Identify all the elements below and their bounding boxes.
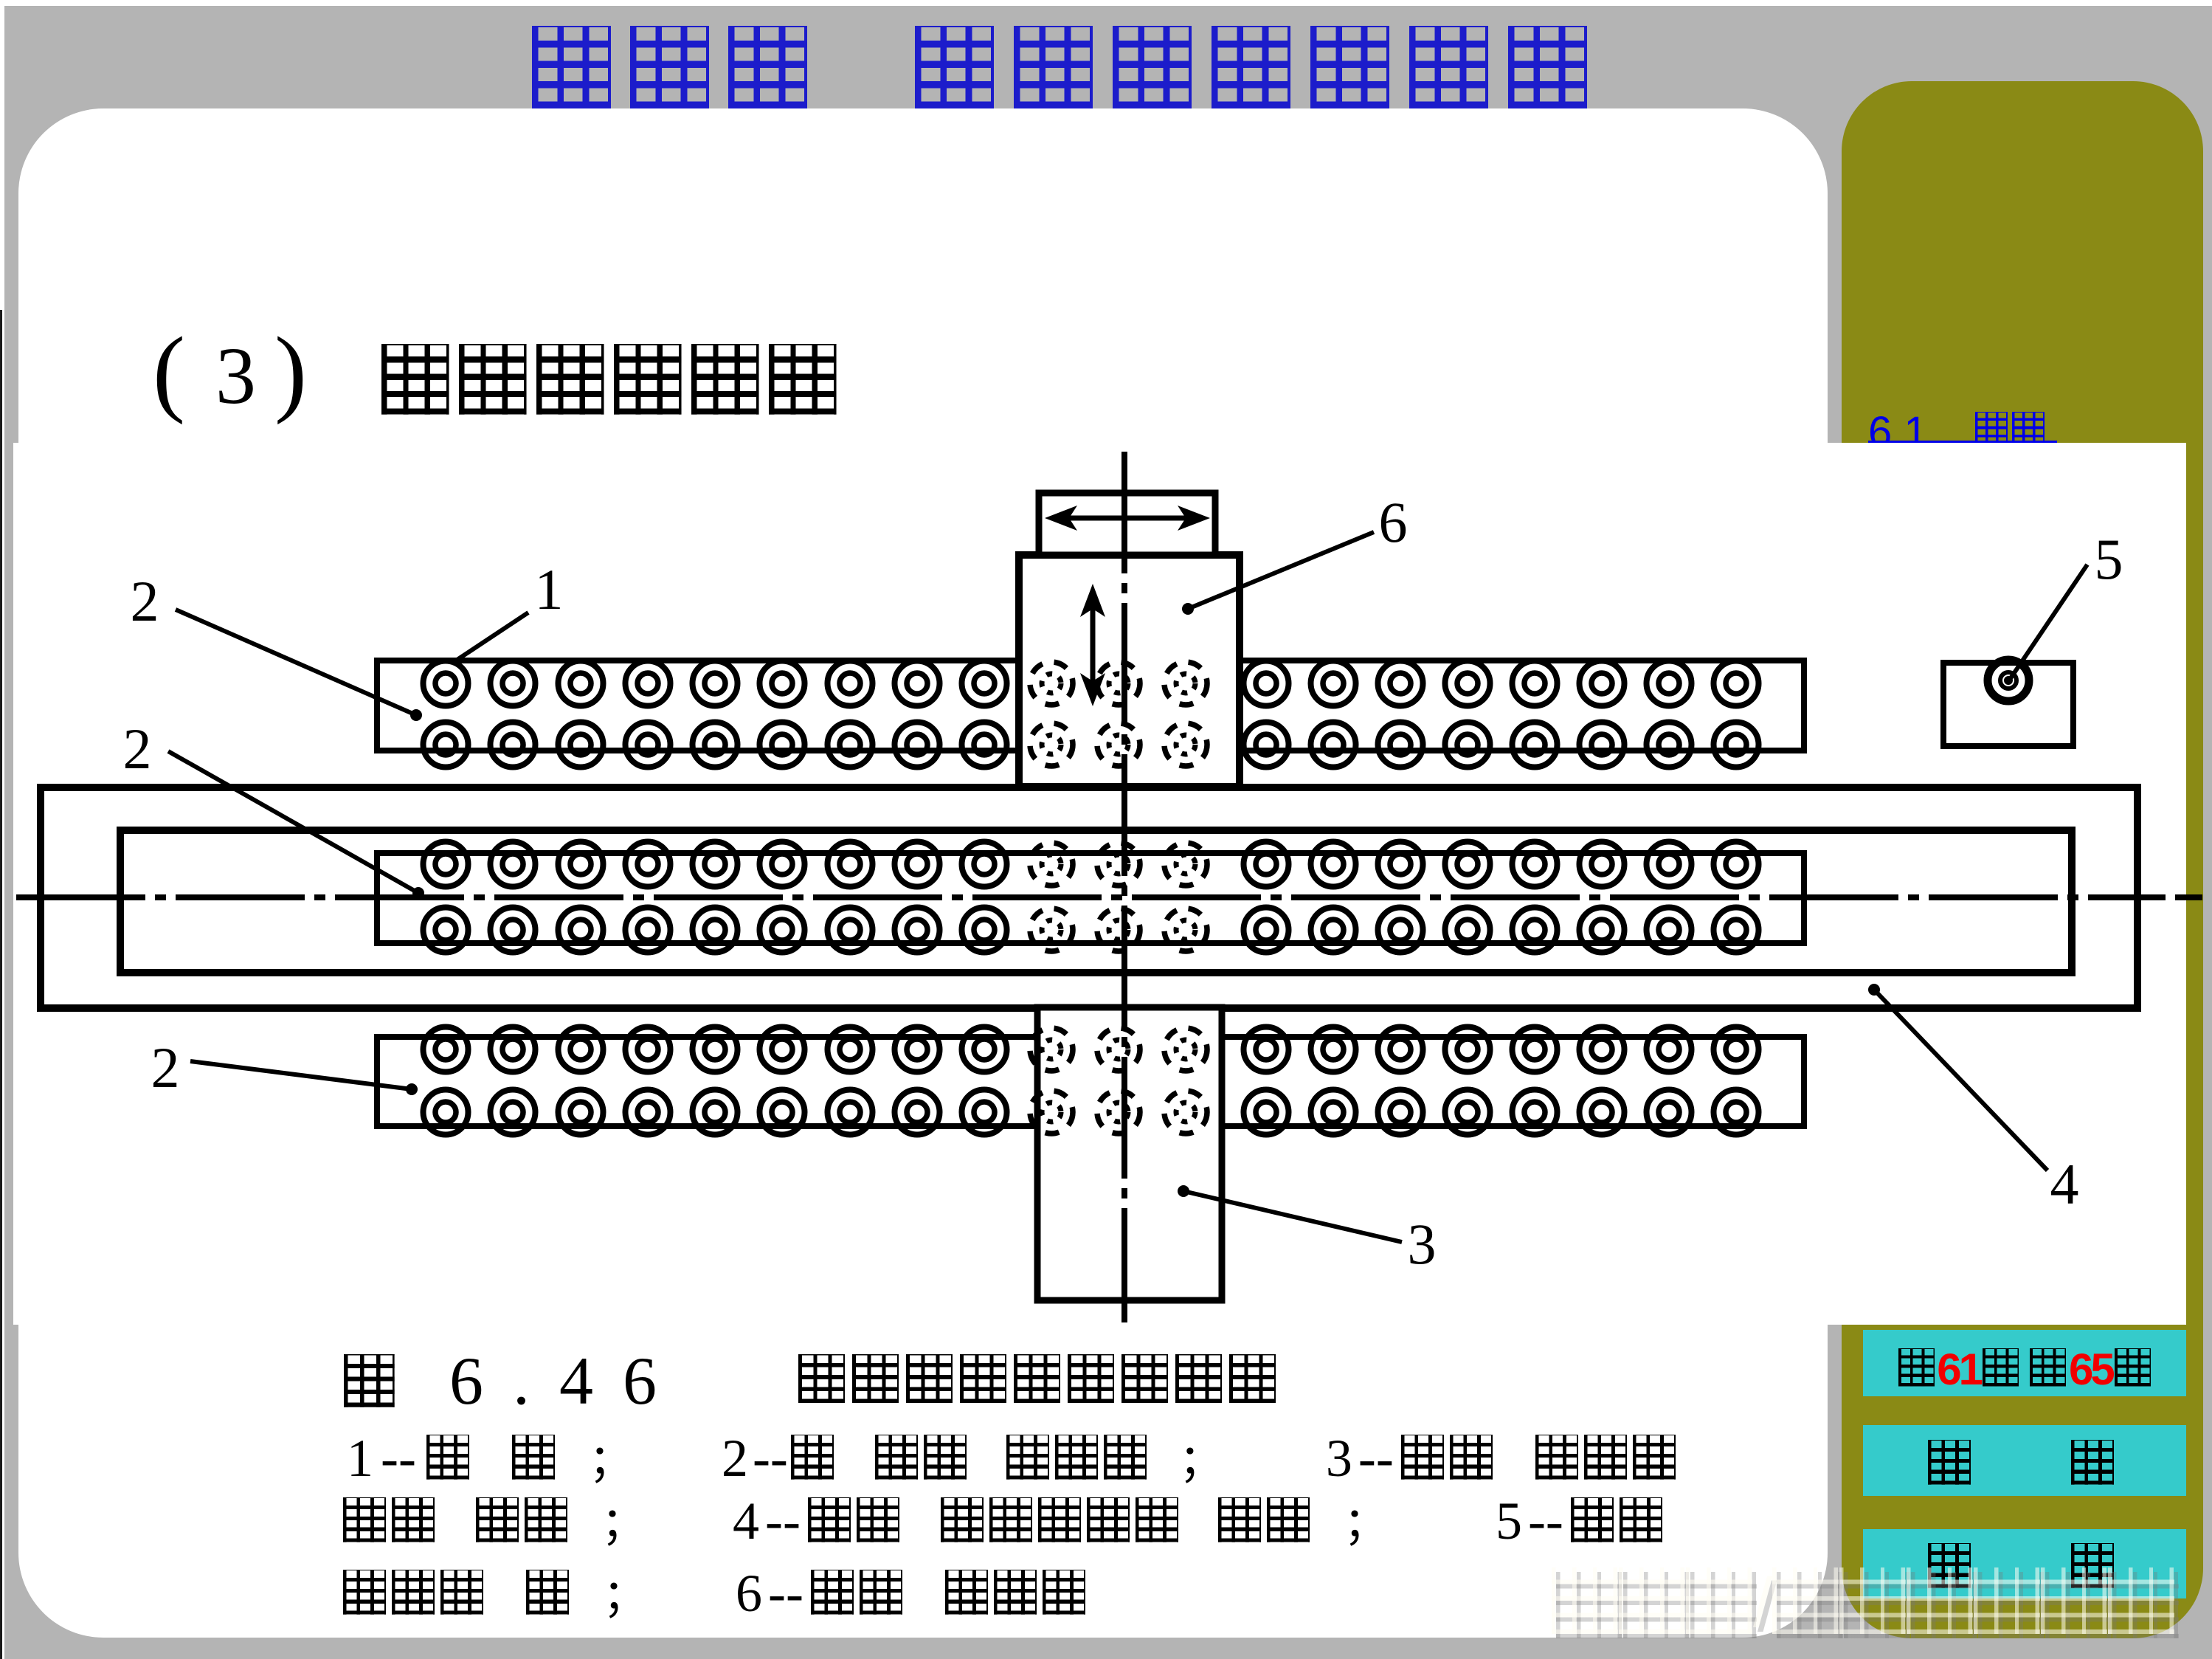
svg-text:2: 2 xyxy=(131,569,159,633)
svg-text:1: 1 xyxy=(535,557,564,621)
svg-text:2: 2 xyxy=(123,717,152,781)
svg-text:3: 3 xyxy=(1408,1212,1437,1276)
svg-text:5: 5 xyxy=(2095,527,2123,591)
svg-text:6: 6 xyxy=(1379,490,1408,554)
svg-text:2: 2 xyxy=(151,1035,180,1100)
svg-text:4: 4 xyxy=(2050,1152,2079,1216)
